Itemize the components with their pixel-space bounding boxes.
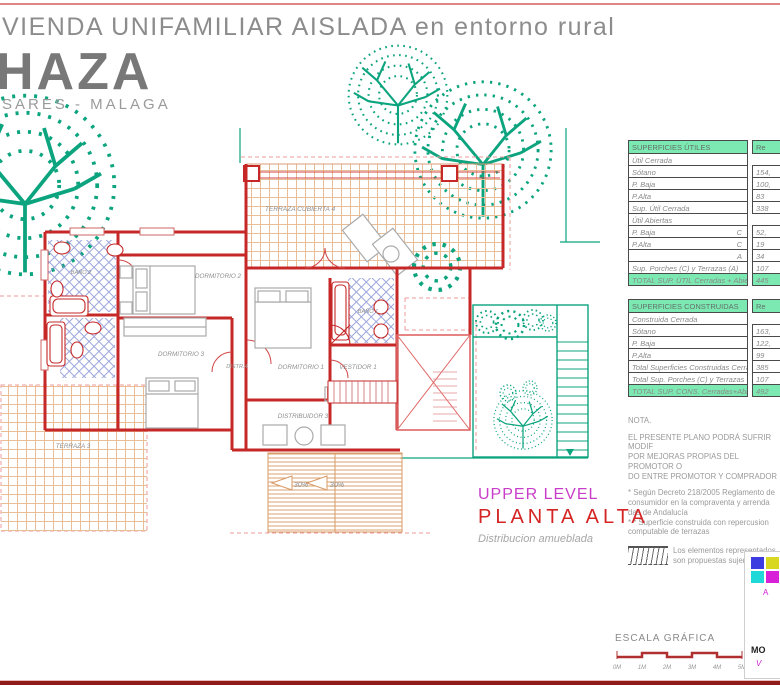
tick-0m: 0M — [613, 665, 621, 671]
superficies-utiles-table: SUPERFICIES ÚTILESRe Útil Cerrada Sótano… — [628, 141, 780, 286]
nota-block: NOTA. EL PRESENTE PLANO PODRÁ SUFRIR MOD… — [628, 416, 780, 566]
furniture — [120, 266, 383, 445]
label-distr-4: DISTR.4 — [226, 364, 247, 370]
terrace-plant-icon — [414, 244, 460, 290]
graphic-scale: ESCALA GRÁFICA 0M 1M 2M 3M 4M 5M — [615, 633, 755, 673]
garden-below — [473, 305, 588, 457]
table-header: SUPERFICIES CONSTRUIDASRe — [628, 299, 780, 313]
scale-label: ESCALA GRÁFICA — [615, 633, 755, 644]
tree-top-right-large-icon — [415, 82, 551, 218]
logo-text-fragment-mo: MO — [751, 645, 766, 655]
project-name: HAZA — [0, 42, 152, 102]
roof-overhang-dashed-lines — [0, 157, 510, 533]
label-slope-1: 30% — [294, 480, 309, 489]
nota-paragraph-2: * Según Decreto 218/2005 Reglamento de c… — [628, 488, 780, 537]
superficies-construidas-table: SUPERFICIES CONSTRUIDASRe Construida Cer… — [628, 300, 780, 397]
sheet-title: VIENDA UNIFAMILIAR AISLADA en entorno ru… — [2, 13, 615, 42]
scale-bar — [615, 648, 745, 660]
tick-2m: 2M — [663, 665, 671, 671]
level-title-english: UPPER LEVEL — [478, 486, 649, 504]
tick-4m: 4M — [713, 665, 721, 671]
table-total-row: TOTAL SUP. CONS. Cerradas+Abiertas492 — [628, 384, 780, 397]
exterior-interior-walls — [45, 164, 503, 450]
architect-logo-box: A MO V — [744, 551, 780, 679]
terraza-cubierta-area — [244, 164, 503, 290]
logo-square-cyan — [751, 571, 764, 583]
terraza-3-area — [1, 385, 147, 531]
bottom-border-line — [0, 680, 780, 685]
stair-tower-roof — [397, 335, 470, 430]
label-terraza-3: TERRAZA 3 — [56, 443, 91, 450]
label-dormitorio-3: DORMITORIO 3 — [158, 351, 205, 358]
windows — [41, 228, 174, 370]
hatch-legend-icon — [628, 546, 668, 565]
tick-1m: 1M — [638, 665, 646, 671]
table-total-row: TOTAL SUP. ÚTIL Cerradas + Abiertas445 — [628, 273, 780, 286]
staircase — [328, 372, 457, 421]
label-dormitorio-2: DORMITORIO 2 — [195, 273, 242, 280]
top-border-line — [0, 3, 780, 5]
logo-square-blue — [751, 557, 764, 569]
tree-top-right-small-icon — [349, 46, 448, 145]
door-arcs — [118, 248, 348, 378]
label-slope-2: 30% — [330, 480, 345, 489]
label-vestidor-1: VESTIDOR 1 — [339, 364, 376, 371]
level-title-block: UPPER LEVEL PLANTA ALTA Distribucion amu… — [478, 486, 649, 545]
tree-top-left-icon — [0, 96, 114, 275]
label-bano-2: BAÑO 2 — [71, 269, 92, 276]
logo-square-magenta — [766, 571, 779, 583]
level-title-spanish: PLANTA ALTA — [478, 506, 649, 529]
label-distribuidor-3: DISTRIBUIDOR 3 — [278, 413, 329, 420]
sanitary-fixtures — [47, 242, 388, 366]
project-location: SARES - MALAGA — [2, 96, 171, 113]
bathroom-tiles — [48, 240, 394, 378]
level-subtitle: Distribucion amueblada — [478, 533, 649, 545]
sloped-roof-area — [268, 453, 402, 532]
tick-3m: 3M — [688, 665, 696, 671]
logo-text-fragment-a: A — [763, 588, 768, 597]
logo-text-fragment-v: V — [756, 659, 761, 668]
scale-ticks: 0M 1M 2M 3M 4M 5M — [615, 665, 745, 673]
nota-title: NOTA. — [628, 416, 780, 426]
logo-square-yellow — [766, 557, 779, 569]
lounge-furniture — [342, 214, 417, 276]
label-bano-1: BAÑO 1 — [358, 308, 379, 315]
label-dormitorio-1: DORMITORIO 1 — [278, 364, 324, 371]
survey-guide-lines — [240, 128, 600, 458]
table-header: SUPERFICIES ÚTILESRe — [628, 140, 780, 154]
nota-paragraph-1: EL PRESENTE PLANO PODRÁ SUFRIR MODIF POR… — [628, 433, 780, 482]
label-terraza-cubierta: TERRAZA CUBIERTA 4 — [265, 206, 336, 213]
